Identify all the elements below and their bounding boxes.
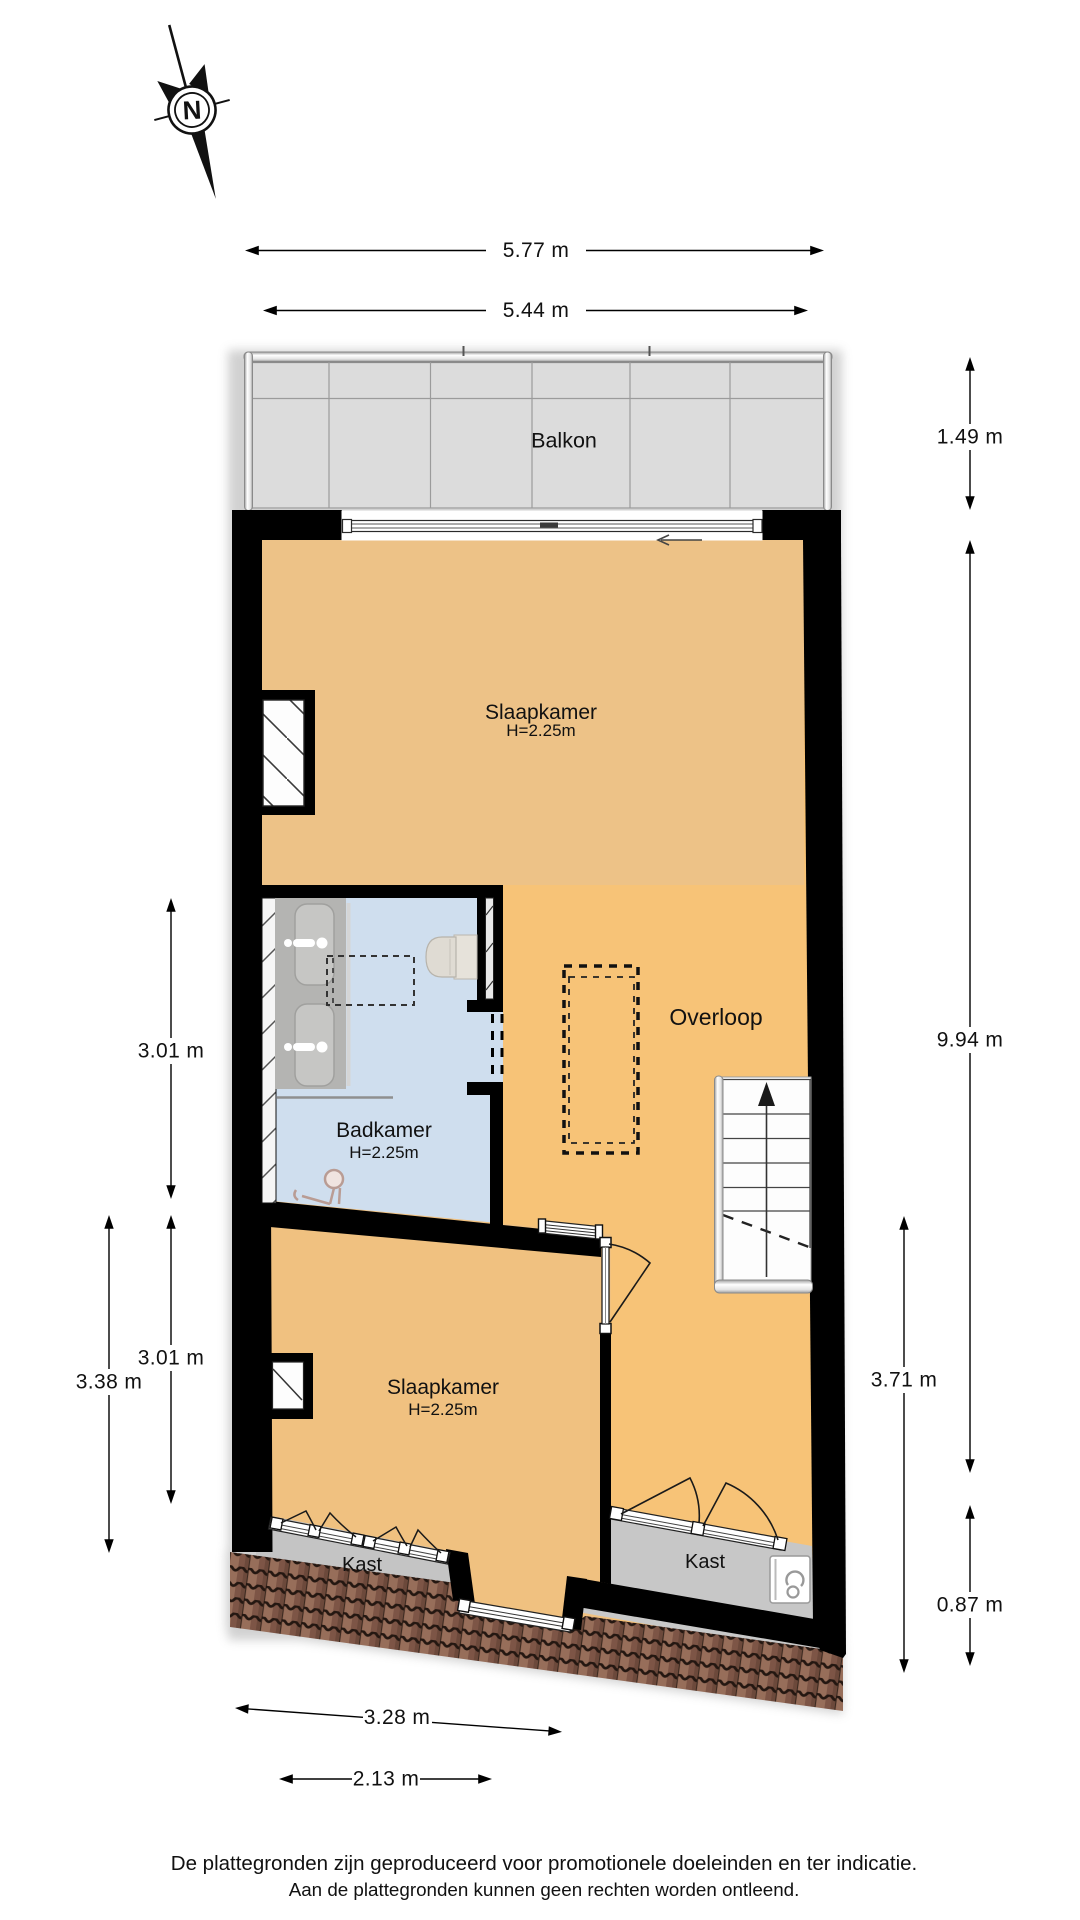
svg-text:9.94 m: 9.94 m [937, 1029, 1004, 1052]
svg-text:Balkon: Balkon [531, 429, 597, 453]
svg-text:5.44 m: 5.44 m [503, 299, 570, 322]
svg-text:0.87 m: 0.87 m [937, 1594, 1004, 1617]
svg-text:3.38 m: 3.38 m [76, 1371, 143, 1394]
svg-text:Badkamer: Badkamer [336, 1119, 432, 1142]
svg-text:Kast: Kast [342, 1554, 382, 1576]
svg-text:H=2.25m: H=2.25m [506, 721, 575, 740]
svg-text:1.49 m: 1.49 m [937, 426, 1004, 449]
svg-text:H=2.25m: H=2.25m [408, 1400, 477, 1419]
svg-text:3.01 m: 3.01 m [138, 1040, 205, 1063]
svg-text:3.01 m: 3.01 m [138, 1347, 205, 1370]
svg-text:3.71 m: 3.71 m [871, 1369, 938, 1392]
svg-text:Kast: Kast [685, 1551, 725, 1573]
svg-text:3.28 m: 3.28 m [364, 1706, 431, 1729]
svg-text:Overloop: Overloop [669, 1004, 762, 1030]
svg-text:De plattegronden zijn geproduc: De plattegronden zijn geproduceerd voor … [171, 1852, 917, 1875]
svg-text:5.77 m: 5.77 m [503, 239, 570, 262]
svg-text:Aan de plattegronden kunnen ge: Aan de plattegronden kunnen geen rechten… [289, 1879, 800, 1900]
svg-text:N: N [182, 95, 202, 126]
svg-text:H=2.25m: H=2.25m [349, 1143, 418, 1162]
svg-text:2.13 m: 2.13 m [353, 1768, 420, 1791]
svg-text:Slaapkamer: Slaapkamer [387, 1376, 499, 1399]
